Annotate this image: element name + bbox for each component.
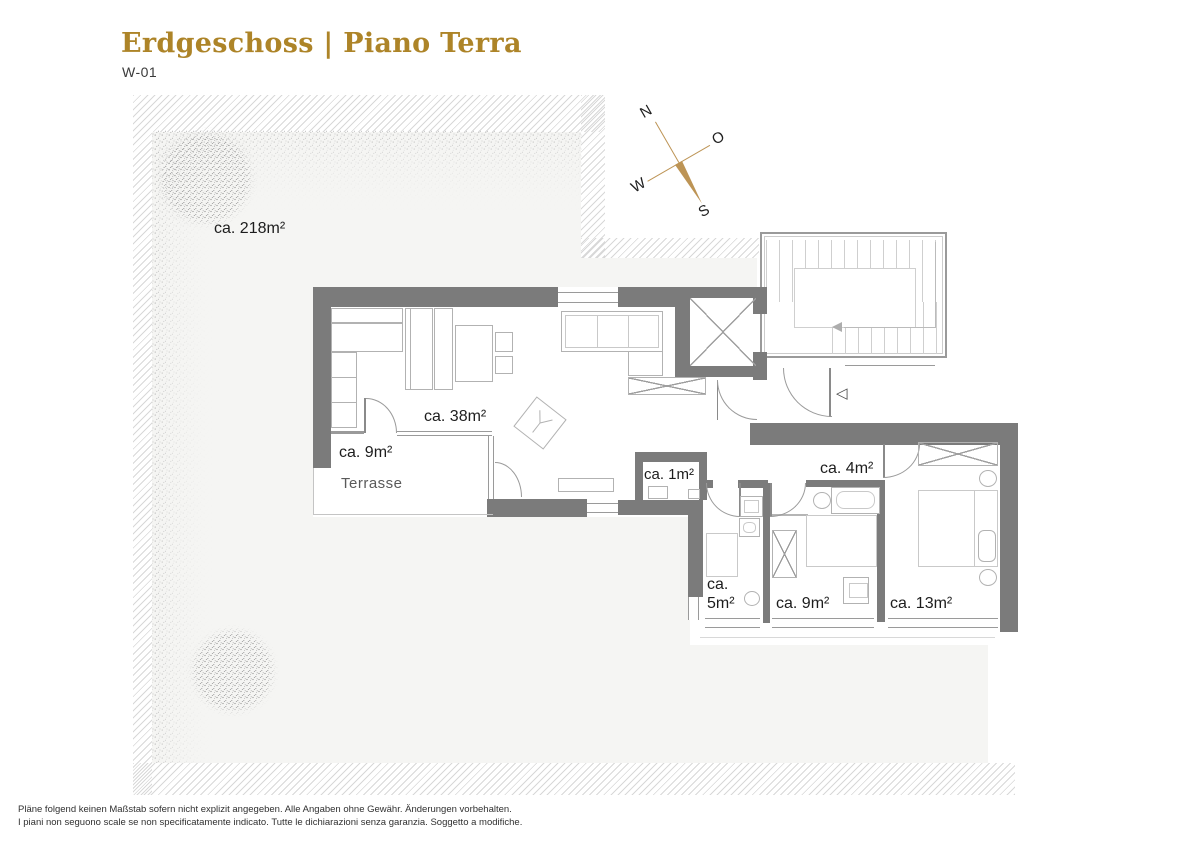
compass-rose: N O S W <box>618 98 738 226</box>
wall <box>618 287 677 307</box>
wall <box>618 500 703 515</box>
small-cabinet <box>688 489 700 499</box>
nightstand <box>979 470 997 487</box>
room-area-label-bedroom-small: ca. 9m² <box>776 595 829 613</box>
window <box>888 618 998 628</box>
window <box>488 436 494 499</box>
terrace-edge <box>313 468 314 515</box>
bed-headboard-line <box>974 491 975 566</box>
nightstand <box>979 569 997 586</box>
wall <box>763 483 770 623</box>
wall <box>699 452 707 500</box>
kitchen-counter-divider <box>332 377 356 378</box>
floor-plan-page: Erdgeschoss | Piano Terra W-01 <box>0 0 1200 848</box>
pillow <box>978 530 996 562</box>
shower <box>706 533 738 577</box>
window <box>558 292 618 303</box>
wardrobe <box>772 530 797 578</box>
disclaimer-line-it: I piani non seguono scale se non specifi… <box>18 817 522 828</box>
window <box>845 357 935 366</box>
stair-railing <box>794 268 916 328</box>
tree-icon <box>152 124 260 232</box>
wall <box>806 480 880 487</box>
toilet-bowl <box>743 522 756 533</box>
room-area-label-bedroom-large: ca. 13m² <box>890 595 952 613</box>
window-sill-line <box>700 637 995 638</box>
stairwell <box>760 232 947 358</box>
stair-walkline <box>844 327 936 328</box>
wall <box>1000 445 1018 632</box>
kitchen-tall-unit <box>434 308 453 390</box>
hatch-border-bottom <box>133 763 1015 795</box>
stair-walkline <box>935 242 936 328</box>
compass-north-line <box>655 122 679 163</box>
wall <box>688 515 703 597</box>
room-area-label-storage: ca. 1m² <box>644 466 694 483</box>
wall <box>675 287 690 377</box>
window <box>587 503 618 513</box>
window <box>397 431 492 436</box>
sofa-cushion-divider <box>628 315 629 348</box>
room-area-label-living: ca. 38m² <box>424 408 486 426</box>
dining-chair <box>495 332 513 352</box>
terrace-edge <box>313 514 493 515</box>
compass-needle-group: N O S W <box>594 77 762 248</box>
kitchen-counter-divider <box>332 402 356 403</box>
window <box>772 618 874 628</box>
wardrobe <box>918 442 998 466</box>
entrance-arrow-icon: ◁ <box>836 384 848 402</box>
window <box>688 597 699 620</box>
kitchen-unit-divider <box>410 309 411 389</box>
floor-drain <box>744 591 760 606</box>
hatch-border-mid <box>581 238 759 258</box>
compass-letter-n: N <box>637 102 655 122</box>
hatch-border-right-upper <box>581 95 605 258</box>
kitchen-counter <box>331 352 357 428</box>
stair-direction-arrow-icon <box>832 322 842 332</box>
room-area-label-bath-large: ca. 4m² <box>820 460 873 478</box>
sideboard <box>558 478 614 492</box>
sofa-cushion-divider <box>597 315 598 348</box>
tree-icon <box>185 623 281 719</box>
wall <box>635 452 643 500</box>
room-area-label-bath-small-line1: ca. <box>707 576 728 594</box>
partition-wall <box>331 431 364 434</box>
sofa-cushion <box>565 315 659 348</box>
dining-chair <box>495 356 513 374</box>
room-area-label-bath-small-line2: 5m² <box>707 595 735 613</box>
washing-machine <box>648 486 668 499</box>
disclaimer-line-de: Pläne folgend keinen Maßstab sofern nich… <box>18 804 512 815</box>
bathroom-sink <box>813 492 831 509</box>
radiator <box>628 377 706 395</box>
wall <box>313 287 558 307</box>
bathtub-basin <box>836 491 875 509</box>
garden-area-label: ca. 218m² <box>214 220 285 238</box>
compass-letter-o: O <box>709 128 728 149</box>
room-area-label-terrace: ca. 9m² <box>339 444 392 462</box>
sofa-chaise <box>628 351 663 376</box>
wall <box>487 499 587 517</box>
window <box>705 618 760 628</box>
compass-letter-s: S <box>695 201 712 221</box>
bathroom-sink-basin <box>744 500 759 513</box>
room-name-terrace: Terrasse <box>341 475 403 492</box>
hatch-border-left <box>133 95 152 795</box>
wall <box>313 287 331 468</box>
desk-chair <box>849 583 868 598</box>
compass-letter-w: W <box>628 174 649 196</box>
single-bed <box>806 515 877 567</box>
hatch-border-top <box>133 95 605 132</box>
kitchen-counter <box>331 323 403 352</box>
kitchen-counter <box>331 308 403 323</box>
wall <box>635 452 707 462</box>
dining-table <box>455 325 493 382</box>
compass-south-needle <box>675 161 705 206</box>
elevator-shaft <box>690 298 756 366</box>
